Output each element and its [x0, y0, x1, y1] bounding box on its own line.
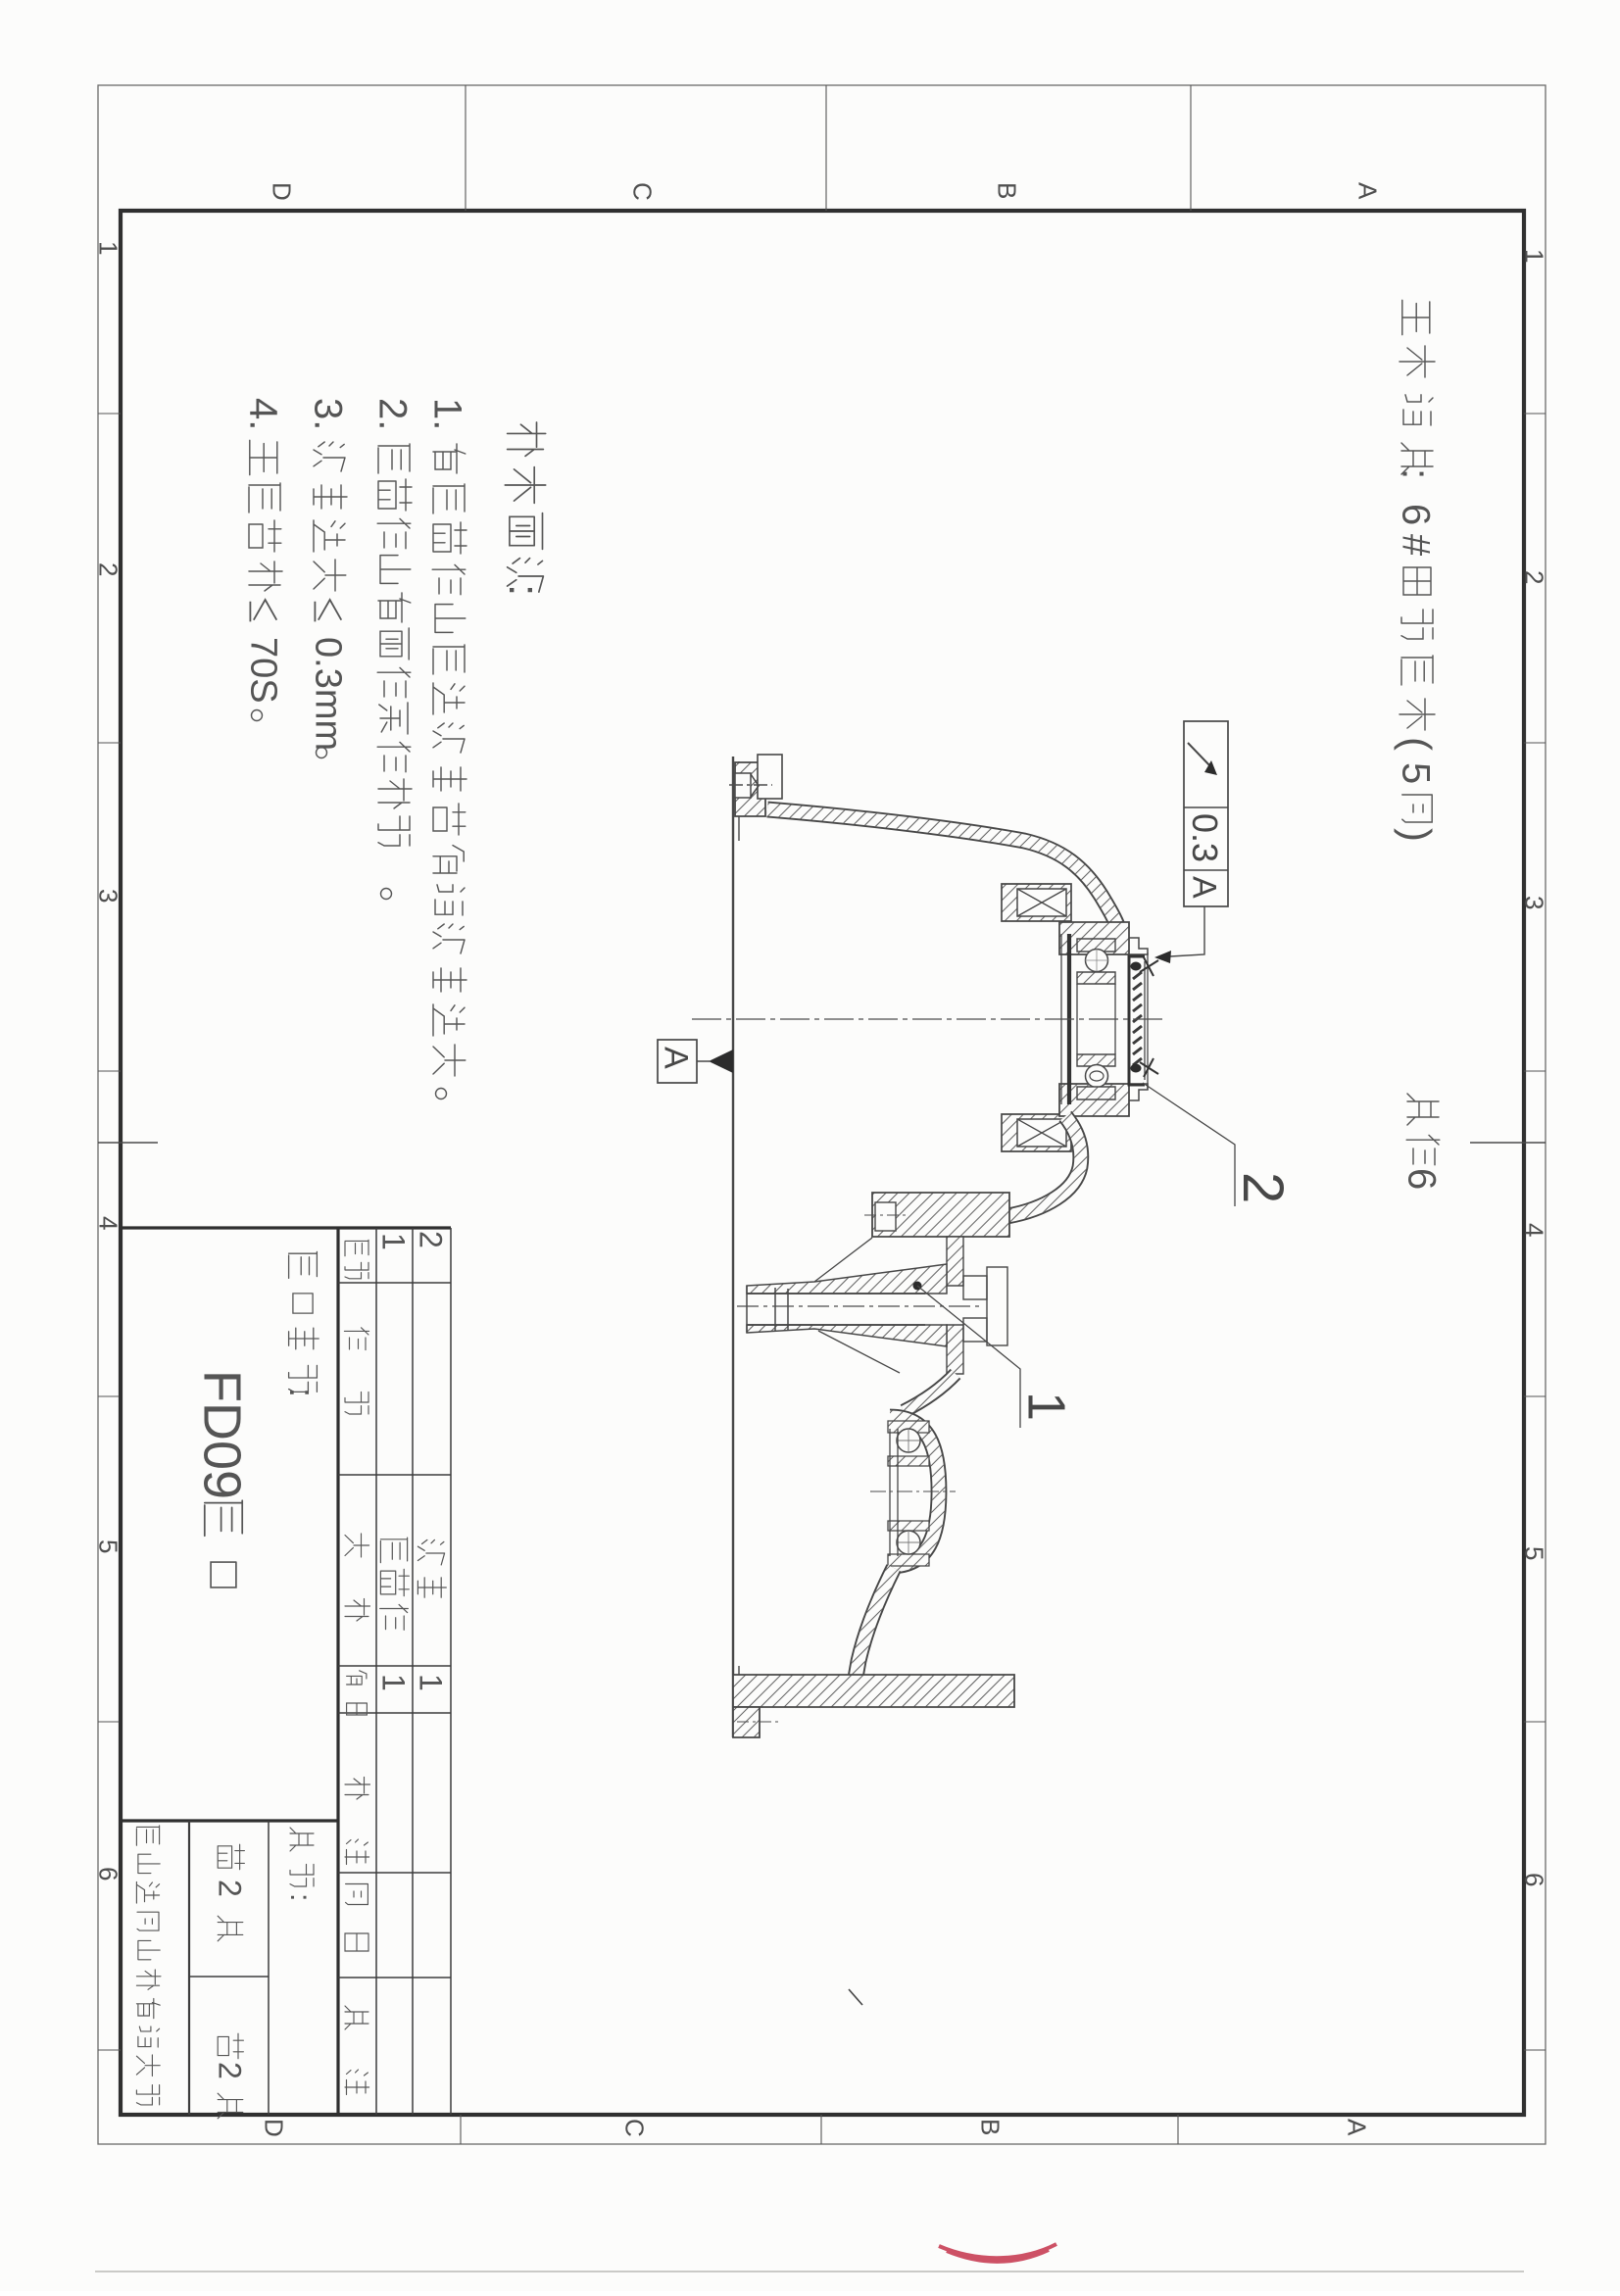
svg-text:D: D — [260, 2119, 289, 2137]
svg-text:D: D — [268, 182, 297, 201]
svg-text:B: B — [993, 182, 1022, 199]
svg-text:#: # — [1395, 534, 1438, 557]
svg-text:2: 2 — [213, 2062, 248, 2079]
svg-text:4.: 4. — [242, 398, 285, 430]
svg-text:2: 2 — [1231, 1172, 1295, 1203]
svg-text:1: 1 — [376, 1233, 412, 1250]
svg-text:6: 6 — [1400, 1168, 1444, 1190]
svg-text::: : — [282, 1388, 322, 1397]
svg-text:2: 2 — [414, 1231, 449, 1248]
svg-text:70S: 70S — [242, 637, 283, 704]
svg-text:B: B — [976, 2119, 1006, 2135]
svg-text:A: A — [1343, 2119, 1372, 2136]
svg-text:): ) — [1394, 828, 1440, 842]
svg-text:5: 5 — [94, 1539, 123, 1553]
svg-text:C: C — [620, 2119, 650, 2137]
svg-text:C: C — [628, 182, 658, 201]
svg-text:2: 2 — [213, 1880, 248, 1897]
svg-text:4: 4 — [1520, 1223, 1549, 1237]
svg-text::: : — [284, 1893, 317, 1901]
svg-text:1: 1 — [1520, 249, 1549, 263]
svg-text:6: 6 — [1520, 1873, 1549, 1886]
svg-text:3: 3 — [1520, 896, 1549, 909]
svg-text:3: 3 — [94, 889, 123, 903]
svg-text:A: A — [1186, 876, 1223, 899]
svg-text:5: 5 — [1520, 1546, 1549, 1560]
svg-text:(: ( — [1394, 737, 1440, 751]
svg-text:2: 2 — [1520, 570, 1549, 584]
svg-text:2.: 2. — [371, 398, 415, 430]
svg-text:2: 2 — [94, 562, 123, 576]
svg-text:5: 5 — [1395, 762, 1438, 784]
svg-text:1: 1 — [414, 1674, 449, 1691]
svg-text:A: A — [1353, 182, 1383, 200]
svg-text:FD09: FD09 — [193, 1370, 252, 1499]
svg-text:3.: 3. — [307, 398, 350, 430]
svg-text:1: 1 — [1017, 1392, 1076, 1421]
svg-text:0.3mm: 0.3mm — [307, 637, 348, 751]
svg-text:0.3: 0.3 — [1185, 813, 1225, 862]
svg-text::: : — [500, 584, 548, 596]
svg-text::: : — [1395, 468, 1438, 479]
svg-text:6: 6 — [94, 1867, 123, 1881]
svg-text:6: 6 — [1395, 504, 1438, 525]
svg-text:4: 4 — [94, 1216, 123, 1230]
svg-text:1: 1 — [94, 241, 123, 255]
svg-text:A: A — [658, 1047, 695, 1069]
svg-text:1.: 1. — [426, 398, 469, 430]
svg-text:1: 1 — [376, 1674, 412, 1691]
